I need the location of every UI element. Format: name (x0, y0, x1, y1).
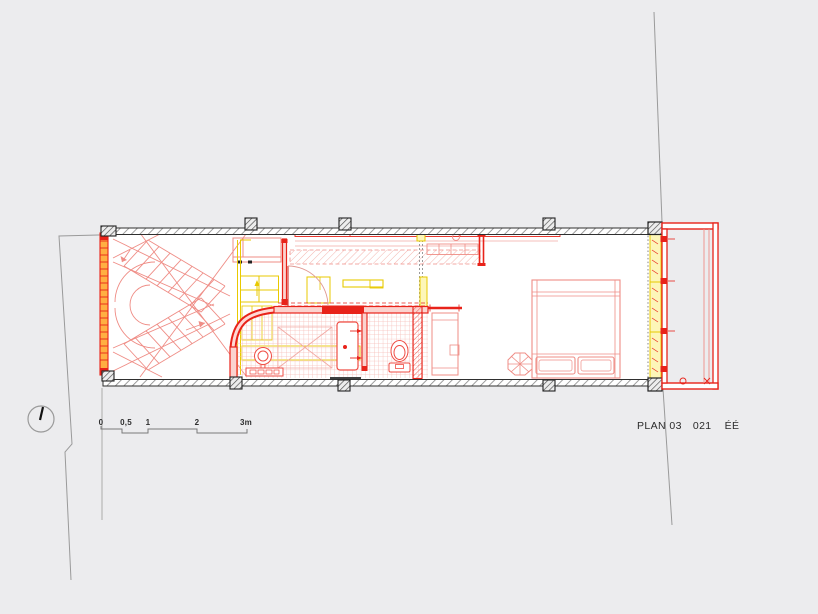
wardrobe (648, 232, 661, 378)
left-ladder-wall (100, 233, 108, 375)
plan-label: PLAN 03 (637, 420, 682, 432)
north-symbol-icon (28, 406, 54, 432)
side-stool (508, 353, 532, 375)
scale-label-3m: 3m (240, 418, 252, 427)
scale-label-1: 1 (146, 418, 151, 427)
vanity (337, 322, 362, 370)
scale-label-0: 0 (99, 418, 104, 427)
toilet (389, 341, 410, 373)
bathroom-right-wall (413, 307, 422, 379)
scale-label-05: 0,5 (120, 418, 132, 427)
scale-bar-graphic (101, 426, 247, 433)
scale-label-2: 2 (195, 418, 200, 427)
revision-label: ÉÉ (725, 420, 740, 432)
balcony (661, 223, 719, 389)
top-wall (103, 228, 662, 235)
title-block: PLAN 03 021 ÉÉ (637, 420, 739, 432)
floor-plan-drawing (0, 0, 818, 614)
sheet-number: 021 (693, 420, 712, 432)
floor-plan-sheet: 0 0,5 1 2 3m PLAN 03 021 ÉÉ (0, 0, 818, 614)
bed (532, 280, 620, 378)
sliding-door (322, 306, 364, 315)
bottom-wall (103, 380, 662, 387)
